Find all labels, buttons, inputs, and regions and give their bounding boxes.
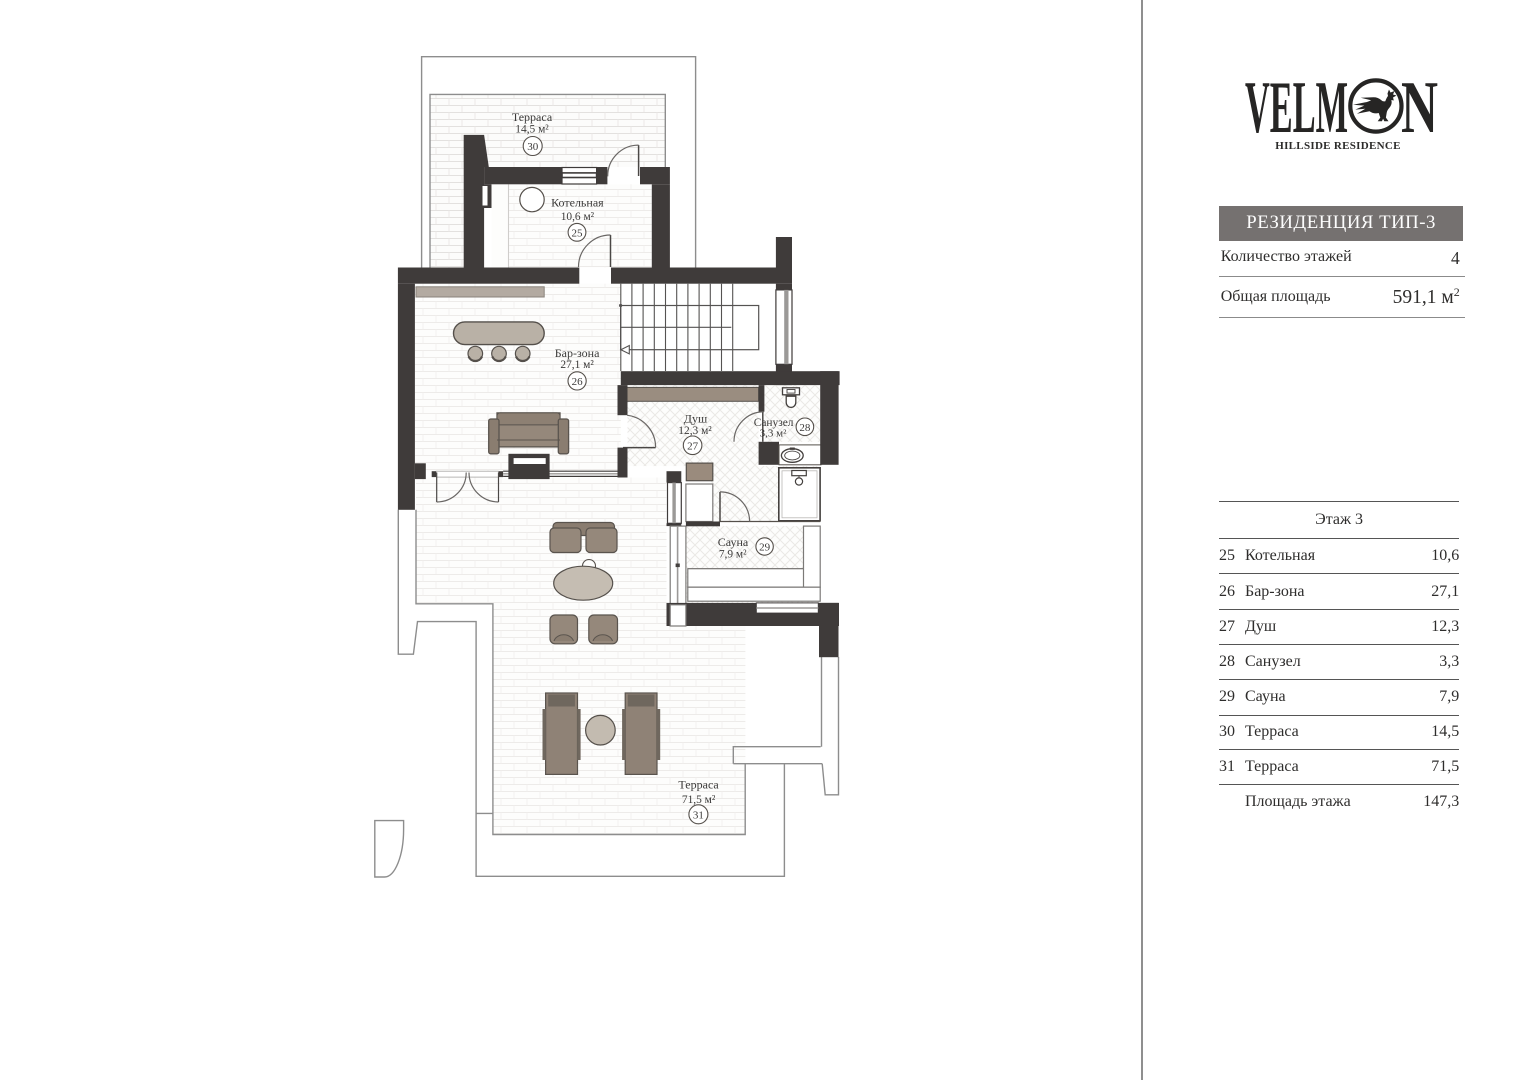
svg-text:VELM: VELM <box>1245 72 1348 138</box>
svg-text:27,1 м²: 27,1 м² <box>560 359 594 371</box>
svg-text:Сауна: Сауна <box>718 535 749 549</box>
svg-text:Терраса: Терраса <box>678 778 719 792</box>
svg-text:N: N <box>1401 72 1438 138</box>
svg-text:Душ: Душ <box>684 411 708 425</box>
svg-text:25: 25 <box>572 227 584 239</box>
svg-text:26: 26 <box>572 376 584 388</box>
svg-text:7,9 м²: 7,9 м² <box>719 548 747 560</box>
svg-text:Бар-зона: Бар-зона <box>555 346 600 360</box>
svg-text:Котельная: Котельная <box>551 196 604 210</box>
svg-text:Терраса: Терраса <box>512 110 553 124</box>
svg-text:31: 31 <box>693 809 704 821</box>
svg-text:12,3 м²: 12,3 м² <box>678 425 712 437</box>
svg-text:28: 28 <box>799 422 811 434</box>
svg-text:3,3 м²: 3,3 м² <box>760 428 787 440</box>
svg-text:29: 29 <box>759 542 771 554</box>
svg-text:30: 30 <box>527 141 539 153</box>
svg-text:27: 27 <box>687 440 699 452</box>
svg-text:71,5 м²: 71,5 м² <box>682 794 716 806</box>
svg-text:14,5 м²: 14,5 м² <box>515 124 549 136</box>
svg-text:10,6 м²: 10,6 м² <box>561 211 595 223</box>
